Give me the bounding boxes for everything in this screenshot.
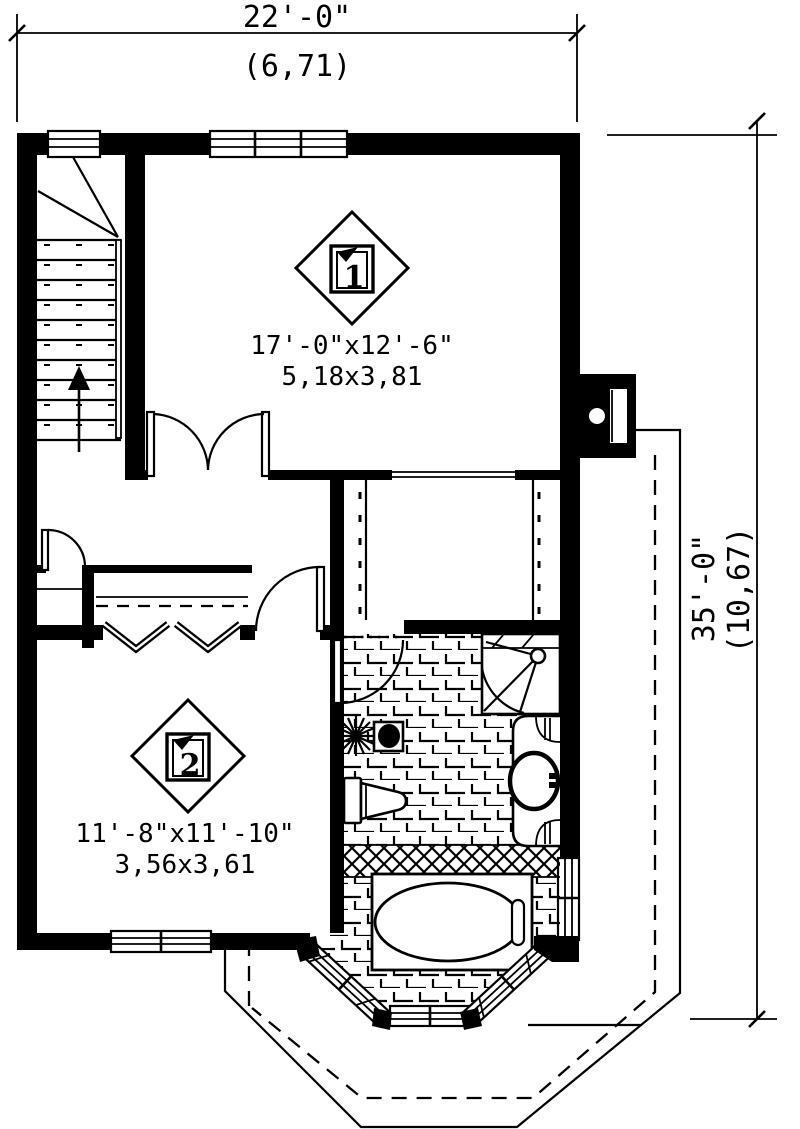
vanity-sink-bowl [510, 753, 558, 809]
room-1-size-imperial: 17'-0"x12'-6" [250, 331, 454, 361]
wall-hall-closet-top [82, 565, 252, 573]
french-doors-room1[interactable] [147, 412, 269, 476]
room-2-size-metric: 3,56x3,61 [115, 850, 256, 880]
stair-winders [38, 157, 118, 237]
room-2-size-imperial: 11'-8"x11'-10" [75, 819, 294, 849]
plant [336, 716, 376, 756]
dimension-top: 22'-0" (6,71) [9, 0, 585, 122]
room-2-label: 2 11'-8"x11'-10" 3,56x3,61 [75, 700, 294, 880]
vanity-faucet [549, 773, 558, 779]
dimension-right: 35'-0" (10,67) [607, 113, 777, 1027]
wall-bath-north-b [404, 620, 560, 634]
chimney [576, 374, 636, 458]
vanity [510, 716, 560, 846]
stair-handrail [116, 240, 121, 438]
room-1-size-metric: 5,18x3,81 [282, 362, 423, 392]
wall-right [560, 133, 580, 860]
cased-opening [392, 472, 515, 477]
staircase [37, 157, 121, 452]
wall-room1-south-c [515, 470, 560, 480]
closets [37, 589, 248, 606]
window-room2-south [111, 931, 211, 952]
dim-right-imperial: 35'-0" [687, 534, 722, 642]
shower [482, 634, 560, 714]
sink-cabinet [374, 722, 403, 751]
dim-top-metric: (6,71) [243, 49, 351, 84]
floor-plan-page: 1 17'-0"x12'-6" 5,18x3,81 2 11'-8"x11'-1… [0, 0, 800, 1129]
bay-window-bottom [390, 1006, 470, 1026]
wall-room1-south-a [125, 470, 148, 480]
bathtub-faucet-ledge [512, 900, 524, 945]
window-room1-triple [210, 131, 347, 157]
knee-walls [360, 480, 539, 620]
wall-hall-south-a [37, 625, 103, 640]
bathtub [372, 874, 532, 970]
floor-plan-drawing: 1 17'-0"x12'-6" 5,18x3,81 2 11'-8"x11'-1… [0, 0, 800, 1129]
window-stair [48, 131, 100, 157]
wall-left [17, 133, 37, 950]
room-1-label: 1 17'-0"x12'-6" 5,18x3,81 [250, 212, 454, 392]
wall-hall-south-b [240, 625, 255, 640]
room-1-number: 1 [344, 260, 365, 295]
dim-right-metric: (10,67) [722, 527, 757, 653]
vanity-faucet-handle [549, 782, 558, 788]
door-room2[interactable] [256, 567, 324, 631]
room-2-number: 2 [180, 748, 201, 783]
window-bay-right-side [558, 858, 579, 940]
tile-band-diamond [344, 845, 560, 877]
dim-top-imperial: 22'-0" [243, 0, 351, 35]
door-left-closet[interactable] [42, 530, 85, 570]
chimney-flue-circle [589, 408, 605, 424]
bifold-closet-doors[interactable] [104, 624, 240, 649]
wall-stair [125, 155, 145, 470]
wall-bath-north-a [330, 620, 342, 634]
bay-post-right-bottom [460, 1008, 482, 1030]
